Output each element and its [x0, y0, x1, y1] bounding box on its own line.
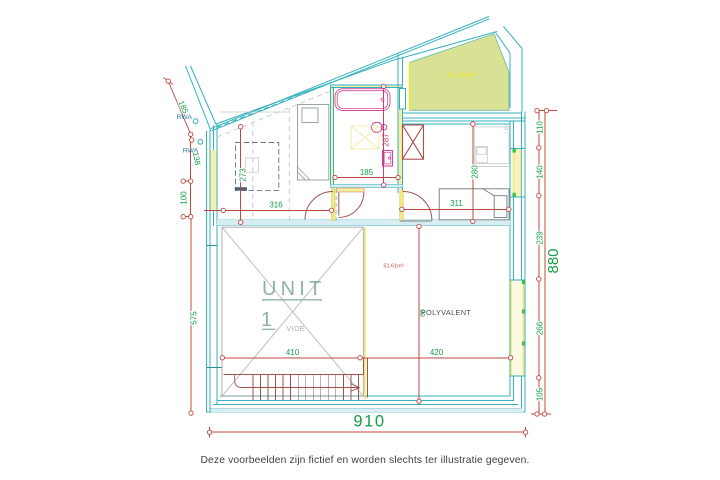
svg-text:575: 575 — [190, 311, 199, 325]
svg-text:420: 420 — [430, 348, 444, 357]
svg-text:266: 266 — [536, 321, 545, 335]
svg-text:105: 105 — [536, 387, 545, 401]
svg-text:VIDE: VIDE — [287, 324, 305, 333]
svg-text:185: 185 — [360, 168, 374, 177]
svg-text:280: 280 — [470, 165, 479, 179]
svg-text:RWA: RWA — [183, 148, 199, 155]
svg-text:100: 100 — [179, 191, 188, 205]
svg-text:140: 140 — [536, 165, 545, 179]
svg-text:316: 316 — [269, 201, 283, 210]
svg-text:185: 185 — [177, 99, 191, 115]
svg-text:287: 287 — [381, 133, 390, 147]
svg-text:273: 273 — [239, 168, 248, 182]
svg-text:Deze voorbeelden zijn fictief: Deze voorbeelden zijn fictief en worden … — [200, 455, 529, 466]
svg-text:68: 68 — [420, 309, 427, 317]
svg-text:311: 311 — [450, 199, 463, 208]
svg-text:880: 880 — [545, 248, 562, 273]
svg-text:1.80: 1.80 — [504, 125, 509, 134]
svg-text:410: 410 — [286, 348, 300, 357]
svg-text:Ter. 8.6m²: Ter. 8.6m² — [448, 72, 476, 79]
svg-text:POLYVALENT: POLYVALENT — [421, 308, 472, 317]
svg-text:1: 1 — [261, 309, 272, 331]
svg-text:910: 910 — [353, 413, 385, 431]
svg-text:RWA: RWA — [177, 114, 193, 121]
svg-text:51.61m²: 51.61m² — [383, 264, 403, 270]
svg-text:110: 110 — [536, 121, 545, 134]
svg-text:239: 239 — [536, 231, 545, 245]
svg-text:UNIT: UNIT — [262, 278, 325, 300]
